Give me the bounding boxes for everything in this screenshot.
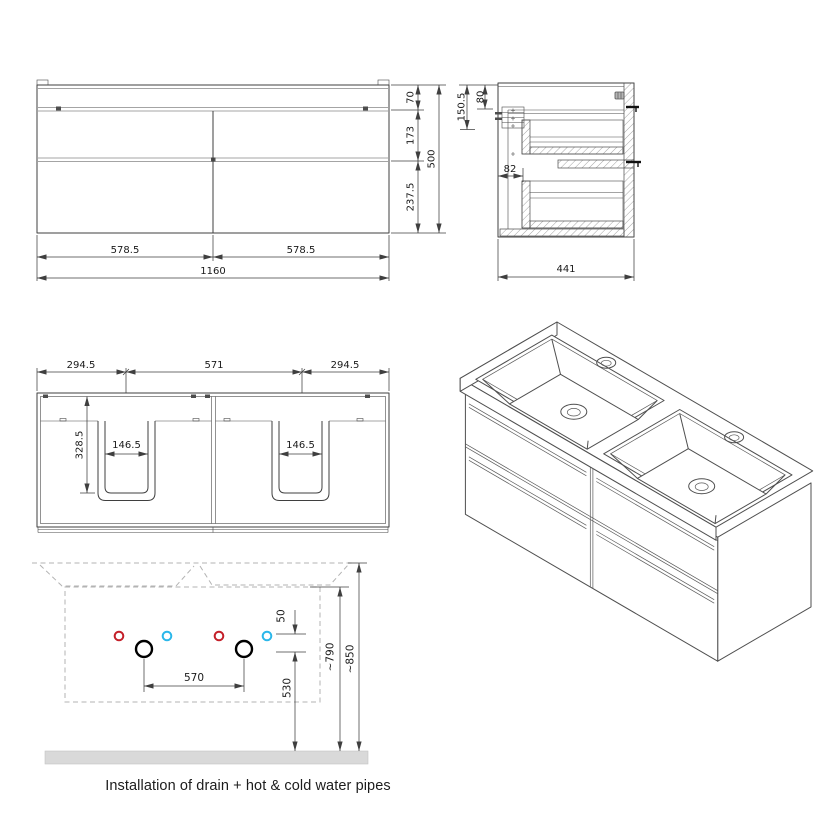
drawer-clip [363, 107, 368, 111]
wall-tab-right [378, 80, 389, 85]
dim-top-cutout-depth: 328.5 [75, 431, 86, 460]
cold-water-pipe-left [163, 632, 172, 641]
dim-side-hanger-inset: 80 [476, 91, 487, 104]
corner-clip [191, 395, 196, 399]
dim-install-pipe-offset: 50 [276, 609, 288, 622]
drawing-line [522, 181, 530, 228]
hot-water-pipe-left [115, 632, 124, 641]
drawing-sheet: 578.5 578.5 1160 70 173 237.5 500 [0, 0, 830, 830]
dim-front-height-upper: 173 [406, 126, 417, 145]
side-section-view: 82 150.5 80 441 [457, 83, 642, 281]
wall-tab-left [37, 80, 48, 85]
drawing-line [530, 221, 623, 228]
drain-pipe-right [236, 641, 252, 657]
installation-caption: Installation of drain + hot & cold water… [62, 778, 434, 794]
dim-top-offset-right: 294.5 [331, 360, 360, 371]
screw-icon [615, 92, 624, 99]
middle-rail-section [558, 160, 634, 168]
drain-pipe-left [136, 641, 152, 657]
hot-water-pipe-right [215, 632, 224, 641]
isometric-view [460, 322, 813, 661]
dim-front-height-total: 500 [427, 149, 438, 168]
floor [45, 751, 368, 764]
installation-view: 570 50 530 ~790 ~850 [32, 563, 368, 764]
drawing-line [495, 118, 502, 121]
technical-drawing-canvas: 578.5 578.5 1160 70 173 237.5 500 [0, 0, 830, 830]
bottom-panel-section [500, 229, 624, 236]
front-view: 578.5 578.5 1160 70 173 237.5 500 [37, 80, 446, 281]
dim-front-width-left: 578.5 [111, 245, 140, 256]
cabinet-plan-outline [37, 393, 389, 527]
dim-install-cabinet-height: ~790 [325, 643, 337, 672]
dim-front-height-lower: 237.5 [406, 183, 417, 212]
dim-install-drain-spacing: 570 [184, 672, 204, 684]
corner-clip [43, 395, 48, 399]
cold-water-pipe-right [263, 632, 272, 641]
drawing-line [522, 120, 530, 154]
dim-install-drain-height: 530 [282, 678, 294, 698]
top-plan-view: 294.5 571 294.5 328.5 146.5 146.5 [37, 360, 389, 533]
dim-side-hanger-height: 150.5 [457, 93, 468, 122]
basin-right-dashed [200, 565, 348, 585]
dim-side-back-offset: 82 [504, 164, 517, 175]
drawing-line [615, 92, 624, 99]
drawer-clip [56, 107, 61, 111]
drawing-line [495, 112, 502, 115]
dim-front-height-top: 70 [406, 91, 417, 104]
dim-side-depth-total: 441 [556, 264, 575, 275]
dim-top-offset-left: 294.5 [67, 360, 96, 371]
dim-top-cutout-width-left: 146.5 [112, 440, 141, 451]
drawing-line [530, 147, 623, 154]
dim-top-basin-spacing: 571 [204, 360, 223, 371]
corner-clip [365, 395, 370, 399]
dim-install-basin-height: ~850 [345, 645, 357, 674]
dim-front-width-right: 578.5 [287, 245, 316, 256]
basin-left-dashed [40, 565, 194, 586]
corner-clip [205, 395, 210, 399]
dim-front-width-total: 1160 [200, 266, 225, 277]
dim-top-cutout-width-right: 146.5 [286, 440, 315, 451]
